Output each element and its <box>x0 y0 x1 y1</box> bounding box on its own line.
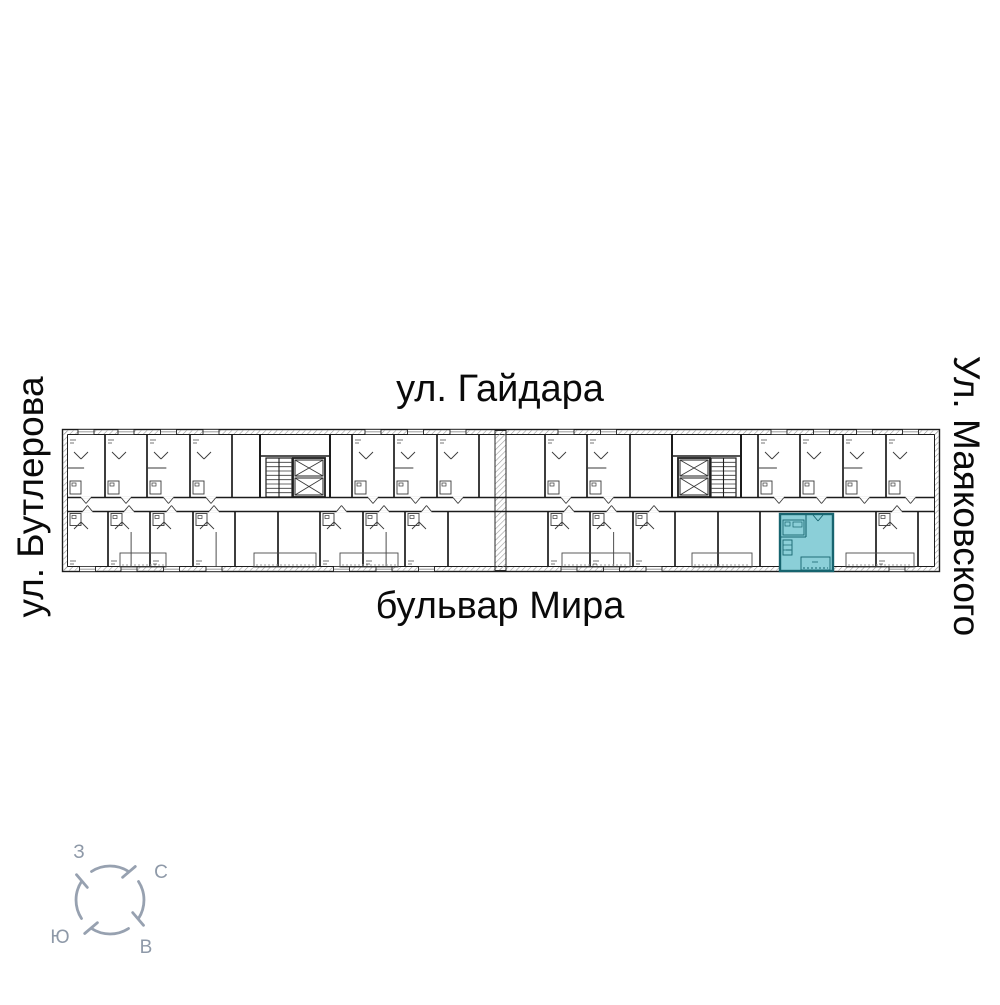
highlighted-apartment[interactable] <box>780 514 833 571</box>
compass-label-east: В <box>140 937 153 958</box>
compass-rose: ЗСЮВ <box>50 842 167 958</box>
compass-label-south: Ю <box>50 927 69 948</box>
compass-label-west: З <box>73 842 84 863</box>
floor-plan-layer: ЗСЮВ <box>0 0 1000 1000</box>
compass-label-north: С <box>154 862 168 883</box>
floor-plan-svg: ЗСЮВ <box>0 0 1000 1000</box>
expansion-joint <box>495 431 506 571</box>
